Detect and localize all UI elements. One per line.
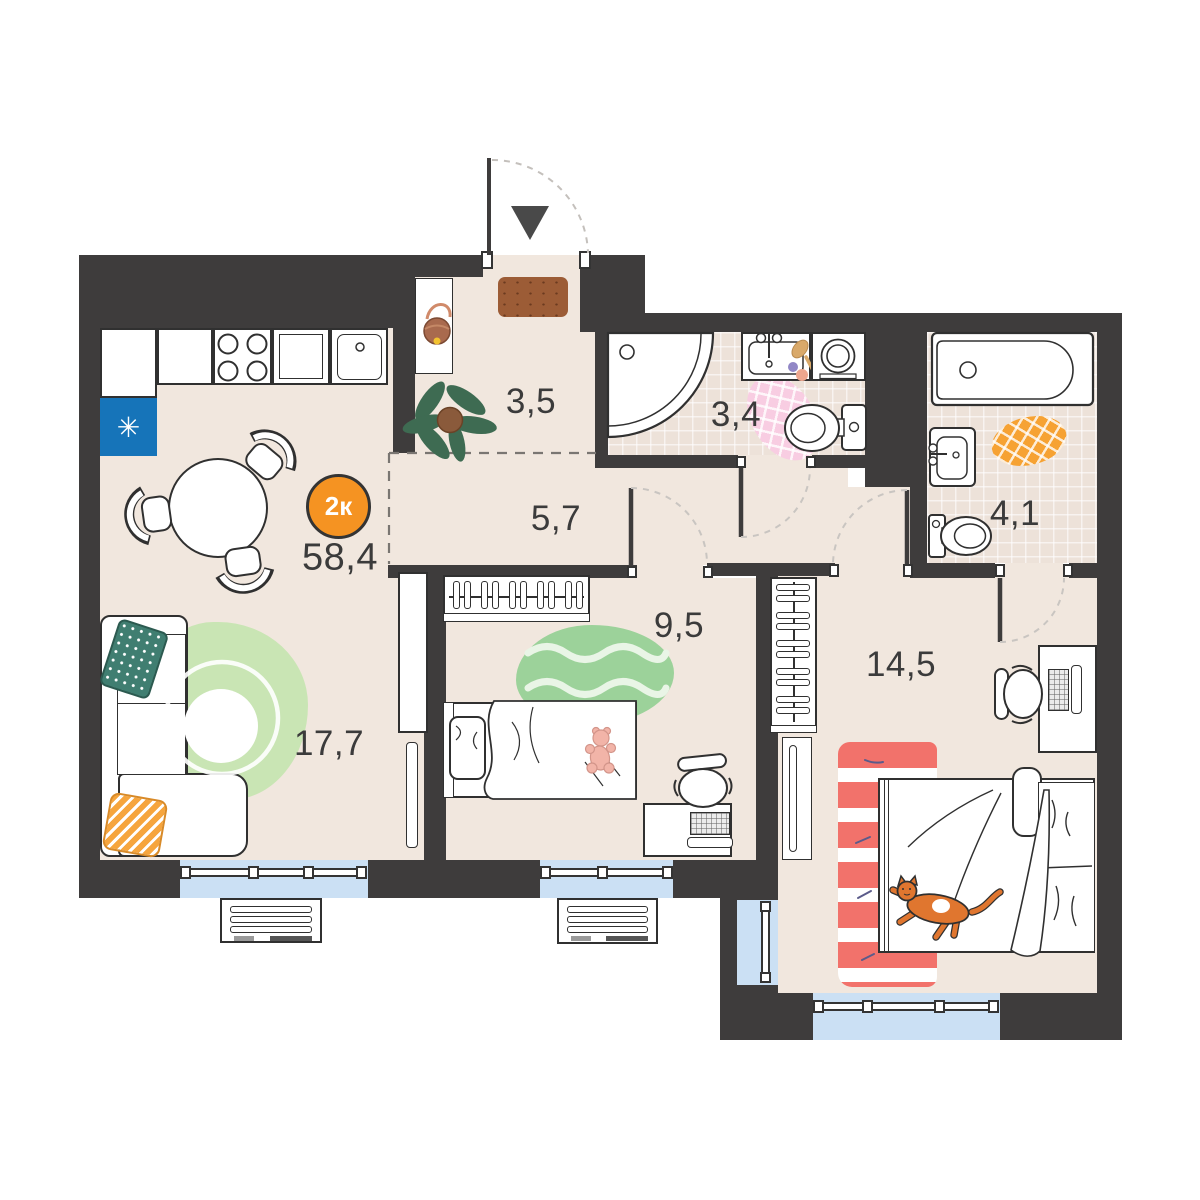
window-jamb xyxy=(988,1000,999,1013)
doormat xyxy=(498,277,568,317)
wall-top-kitchen xyxy=(79,255,393,328)
radiator-foot xyxy=(234,936,254,941)
room-label-hallway: 3,5 xyxy=(506,382,556,422)
rooms-badge-label: 2к xyxy=(325,491,352,522)
hanger xyxy=(776,707,810,714)
oven-inner xyxy=(279,334,323,379)
kitchen-sink-basin xyxy=(337,334,382,380)
entry-door-leaf xyxy=(487,158,491,255)
radiator-foot xyxy=(270,936,312,941)
window-jamb xyxy=(540,866,551,879)
window-jamb xyxy=(760,901,771,912)
hanger xyxy=(776,623,810,630)
wall-bottom-3 xyxy=(673,860,778,898)
radiator-slat xyxy=(230,906,312,913)
bed-double-duvet xyxy=(1038,782,1095,952)
radiator-slat xyxy=(230,916,312,923)
window-master-side xyxy=(737,900,778,985)
sofa-pillow-orange xyxy=(101,791,168,858)
radiator-slat xyxy=(567,916,648,923)
hanger xyxy=(776,696,810,703)
closet-bedroom-shelf xyxy=(443,613,590,622)
hanger xyxy=(776,668,810,675)
wall-kitchen-hallway xyxy=(393,255,415,453)
mirror-living xyxy=(406,742,418,848)
window-jamb xyxy=(662,866,673,879)
bed-single-pillow xyxy=(449,716,486,780)
window-jamb xyxy=(180,866,191,879)
closet-master-shelf xyxy=(770,725,817,733)
door-jamb xyxy=(806,456,816,468)
window-master-bottom-frame xyxy=(816,1002,997,1011)
window-master-side-frame xyxy=(761,906,770,978)
room-label-kitchen-living: 17,7 xyxy=(294,724,364,764)
window-living xyxy=(180,860,368,898)
wall-bathroom-bottom-left xyxy=(595,455,738,468)
wall-hall-top-left xyxy=(415,255,483,277)
window-master-bottom xyxy=(813,993,1000,1040)
radiator xyxy=(557,898,658,944)
hanger xyxy=(509,581,516,609)
laptop-master-keyboard xyxy=(1048,669,1069,711)
hanger xyxy=(776,584,810,591)
hanger xyxy=(576,581,583,609)
room-label-corridor: 5,7 xyxy=(531,499,581,539)
radiator-foot xyxy=(571,936,591,941)
window-living-frame xyxy=(183,868,365,877)
rooms-badge: 2к xyxy=(306,474,371,539)
floor-entry-gap xyxy=(487,255,581,271)
total-area-label: 58,4 xyxy=(302,537,378,580)
room-label-bathroom: 3,4 xyxy=(711,395,761,435)
laptop-master-screen xyxy=(1071,665,1082,714)
door-jamb xyxy=(627,566,637,578)
hanger xyxy=(776,612,810,619)
hanger xyxy=(481,581,488,609)
stove xyxy=(213,328,272,385)
hanger xyxy=(453,581,460,609)
door-jamb xyxy=(1063,564,1073,577)
radiator-foot xyxy=(606,936,648,941)
kitchen-corner-cabinet xyxy=(100,328,157,398)
hanger xyxy=(464,581,471,609)
door-jamb xyxy=(995,564,1005,577)
mirror-master xyxy=(782,737,812,860)
window-jamb xyxy=(597,866,608,879)
kitchen-cabinet xyxy=(157,328,213,385)
wall-bottom-2 xyxy=(368,860,540,898)
wardrobe-living xyxy=(398,572,428,733)
laptop-bedroom-screen xyxy=(687,837,733,848)
door-jamb xyxy=(903,564,913,577)
room-label-master: 14,5 xyxy=(866,645,936,685)
wall-between-bathrooms xyxy=(865,313,927,487)
hanger xyxy=(537,581,544,609)
entry-arrow-icon xyxy=(511,206,549,240)
room-label-ensuite: 4,1 xyxy=(990,494,1040,534)
door-jamb xyxy=(736,456,746,468)
hallway-closet xyxy=(415,278,453,374)
dining-table xyxy=(168,458,268,558)
door-jamb xyxy=(829,564,839,577)
wall-ensuite-bottom-right xyxy=(1069,563,1097,578)
window-jamb xyxy=(356,866,367,879)
radiator-slat xyxy=(230,926,312,933)
wall-left xyxy=(79,255,100,898)
floor-nook xyxy=(848,487,910,565)
hanger xyxy=(565,581,572,609)
wall-right xyxy=(1097,313,1122,1040)
entry-door-jamb xyxy=(579,251,591,269)
wall-bottom-1 xyxy=(79,860,180,898)
window-jamb xyxy=(248,866,259,879)
wall-ensuite-bottom-left xyxy=(927,563,995,578)
hanger xyxy=(776,651,810,658)
wall-hall-bathroom xyxy=(595,332,608,468)
hanger xyxy=(776,679,810,686)
fridge-mark: ✳ xyxy=(117,411,140,444)
fridge: ✳ xyxy=(100,398,157,456)
radiator xyxy=(220,898,322,943)
floor-corridor xyxy=(388,453,848,565)
hanger xyxy=(776,640,810,647)
radiator-slat xyxy=(567,926,648,933)
window-jamb xyxy=(303,866,314,879)
mirror-master-inner xyxy=(789,745,797,852)
radiator-slat xyxy=(567,906,648,913)
window-jamb xyxy=(760,972,771,983)
laptop-bedroom-keyboard xyxy=(690,812,730,835)
hanger xyxy=(492,581,499,609)
floor-plan: ✳ xyxy=(0,0,1200,1200)
window-jamb xyxy=(862,1000,873,1013)
sofa-cushion xyxy=(117,703,186,775)
window-jamb xyxy=(934,1000,945,1013)
hanger xyxy=(548,581,555,609)
entry-door-swing xyxy=(492,160,588,253)
hanger xyxy=(520,581,527,609)
floor-doorgap-bedroom xyxy=(637,565,703,579)
door-jamb xyxy=(703,566,713,578)
wall-bathroom-bottom-right xyxy=(812,455,867,468)
room-label-bedroom: 9,5 xyxy=(654,606,704,646)
bed-double-footboard xyxy=(884,780,889,951)
hanger xyxy=(776,595,810,602)
window-jamb xyxy=(813,1000,824,1013)
floor-bathroom-tile xyxy=(608,332,865,455)
